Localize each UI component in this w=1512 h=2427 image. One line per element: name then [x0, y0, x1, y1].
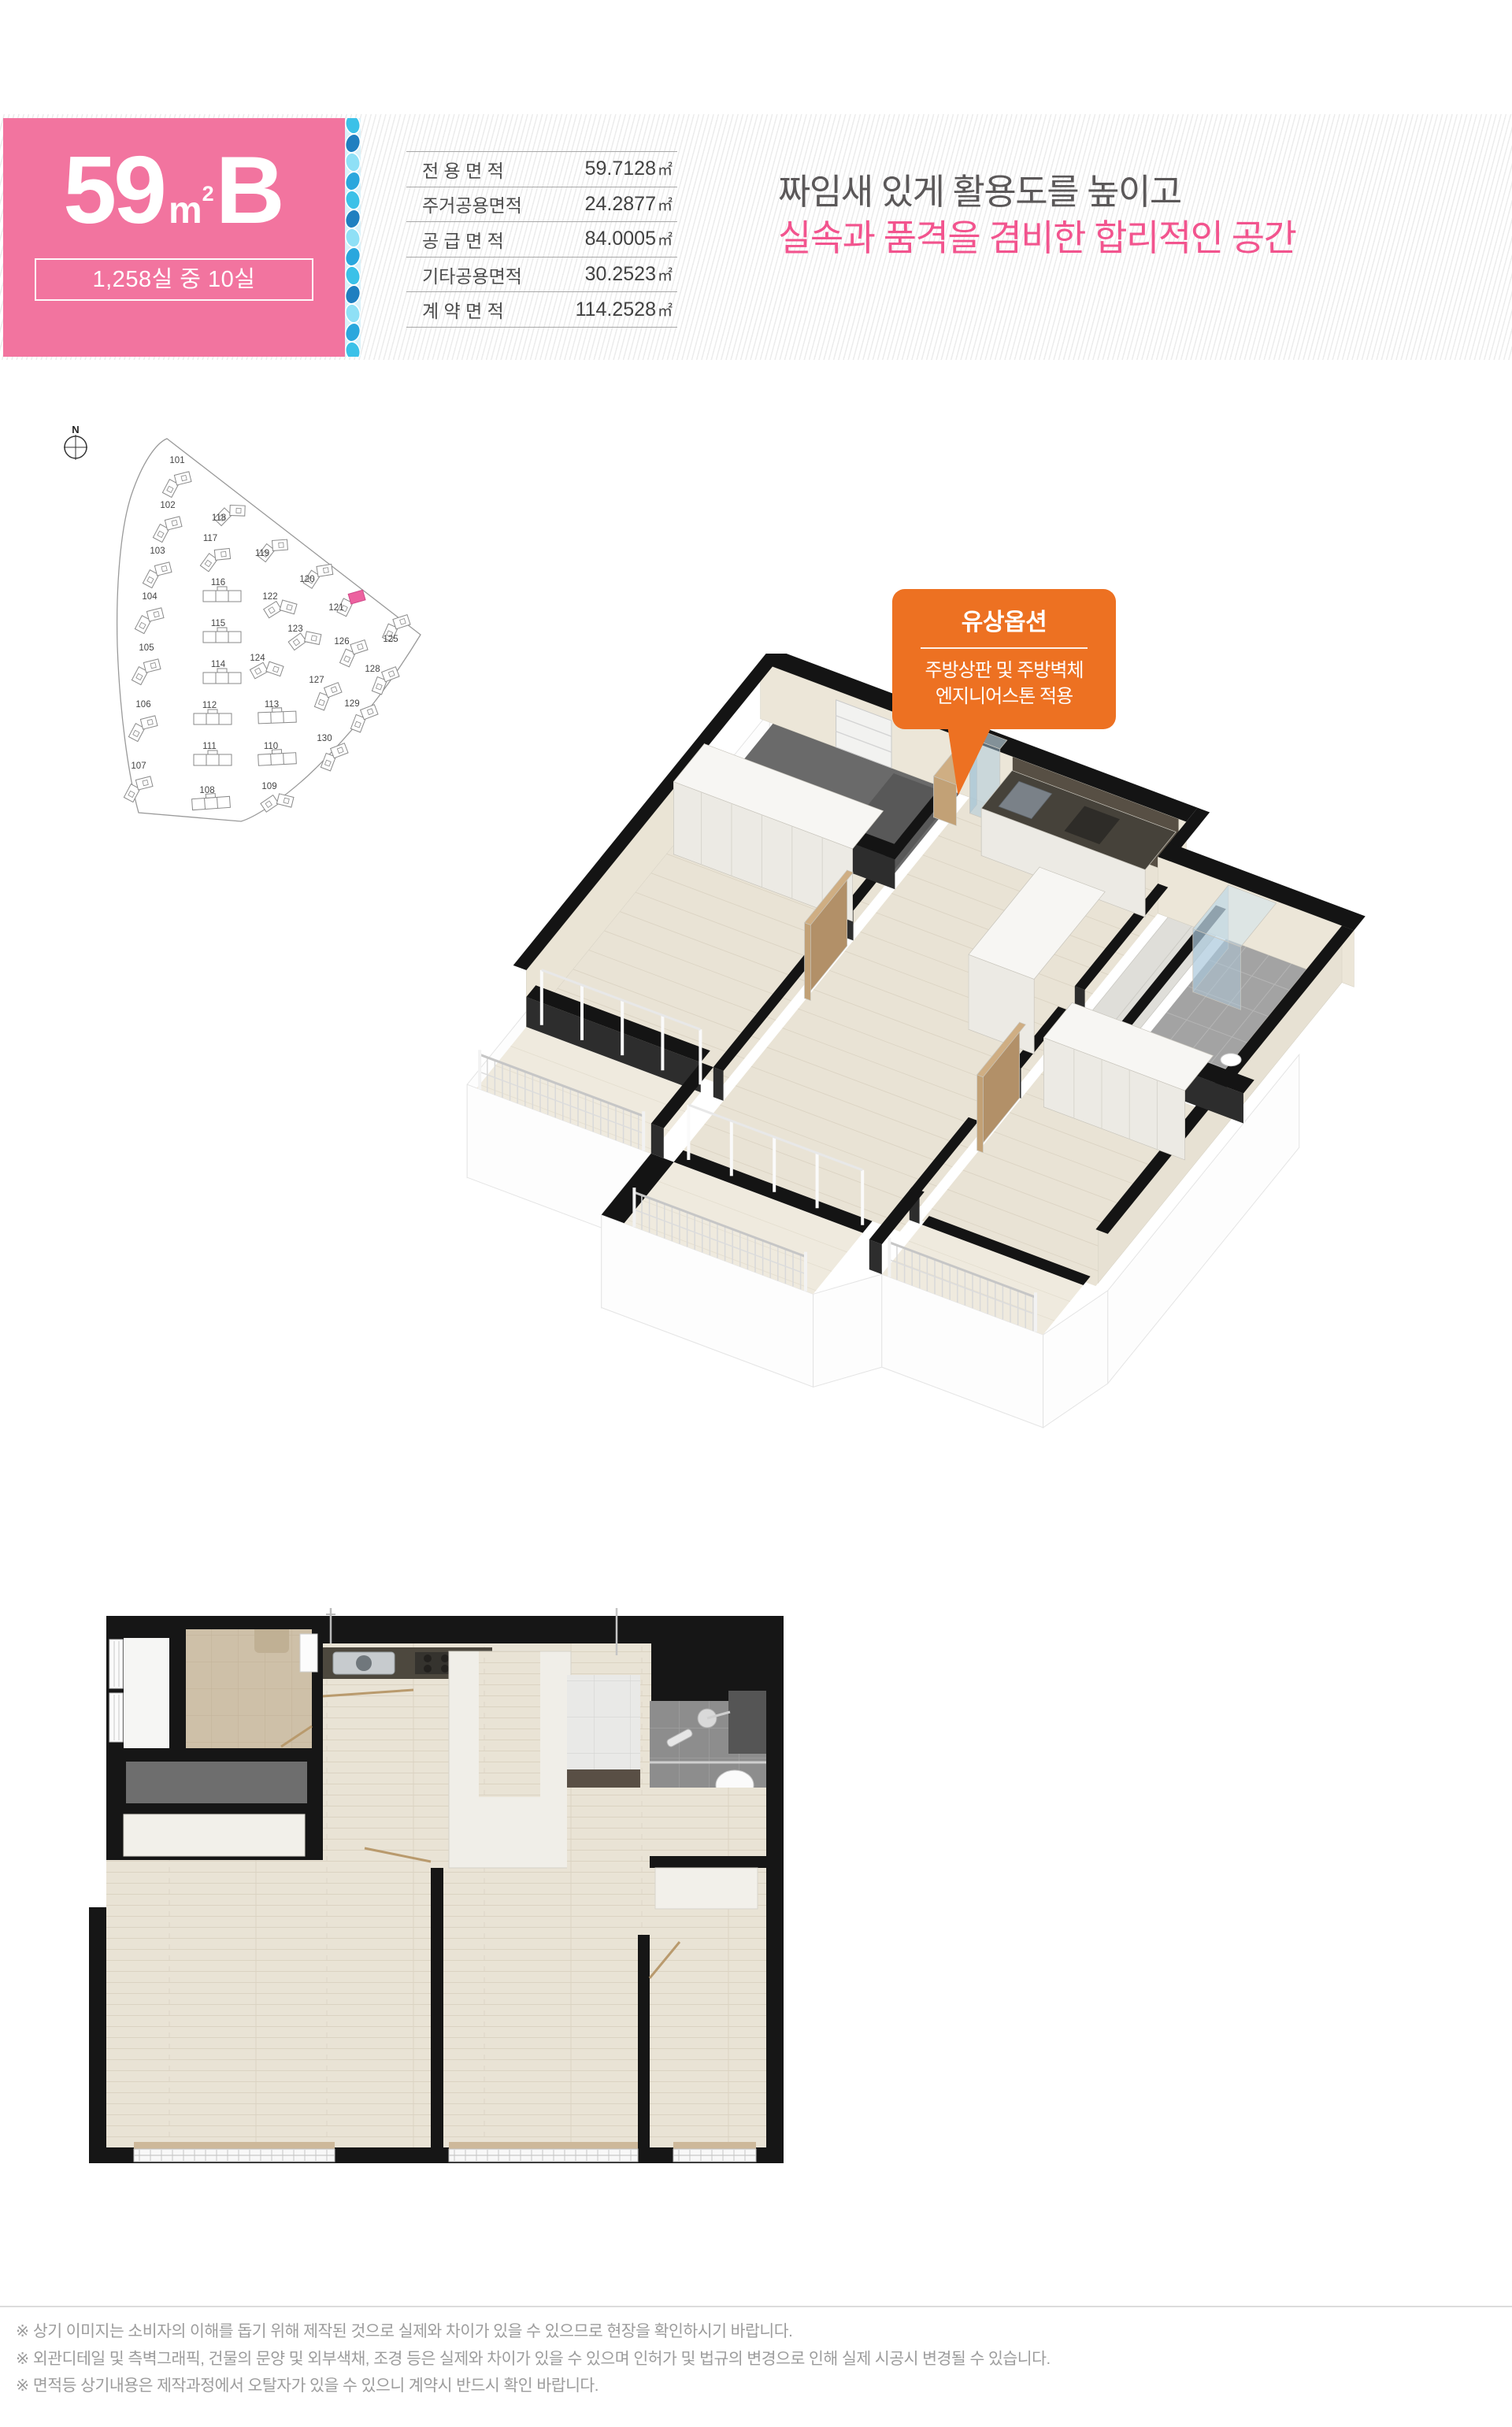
- site-building: [124, 711, 161, 744]
- unit-type-badge: 59m2B 1,258실 중 10실: [3, 118, 345, 357]
- interior-wall: [431, 1868, 443, 2147]
- wave-pattern-graphic: [345, 118, 361, 357]
- unit-area-unit: m2: [169, 182, 214, 232]
- site-building: [158, 467, 195, 500]
- site-building-label: 104: [142, 592, 157, 602]
- site-building: [149, 512, 185, 545]
- disclaimer-line: ※ 면적등 상기내용은 제작과정에서 오탈자가 있을 수 있으니 계약시 반드시…: [16, 2373, 1512, 2400]
- site-building-label: 108: [199, 786, 214, 795]
- callout-title: 유상옵션: [892, 602, 1116, 637]
- site-building-label: 118: [212, 513, 226, 523]
- svg-text:N: N: [72, 424, 79, 435]
- room-mat: [254, 1629, 289, 1653]
- site-building: [139, 558, 175, 591]
- utility-window: [109, 1693, 123, 1742]
- site-building-label: 125: [383, 635, 398, 644]
- site-building-label: 112: [202, 701, 217, 710]
- utility-room-floor: [124, 1638, 169, 1748]
- site-building: [203, 587, 241, 602]
- table-row: 계 약 면 적 114.2528㎡: [406, 292, 677, 328]
- site-building-label: 121: [328, 603, 343, 613]
- paid-option-callout: 유상옵션 주방상판 및 주방벽체 엔지니어스톤 적용: [892, 589, 1116, 729]
- site-building-label: 119: [255, 549, 269, 558]
- site-building: [128, 654, 164, 687]
- site-building-label: 117: [203, 534, 217, 543]
- peninsula-opening: [479, 1651, 540, 1797]
- site-building-label: 101: [169, 456, 184, 465]
- headline-line1: 짜임새 있게 활용도를 높이고: [778, 170, 1295, 214]
- headline: 짜임새 있게 활용도를 높이고 실속과 품격을 겸비한 합리적인 공간: [778, 170, 1295, 261]
- site-building-label: 122: [262, 592, 277, 602]
- site-building-label: 102: [160, 501, 175, 510]
- balcony-window: [449, 2142, 638, 2162]
- callout-body: 주방상판 및 주방벽체 엔지니어스톤 적용: [892, 658, 1116, 710]
- disclaimer-line: ※ 외관디테일 및 측벽그래픽, 건물의 문양 및 외부색채, 조경 등은 실제…: [16, 2346, 1512, 2373]
- disclaimer-line: ※ 상기 이미지는 소비자의 이해를 돕기 위해 제작된 것으로 실제와 차이가…: [16, 2318, 1512, 2346]
- site-building-label: 107: [131, 761, 146, 771]
- site-building: [131, 603, 167, 636]
- balcony-window: [673, 2142, 756, 2162]
- wardrobe-block: [126, 1762, 307, 1803]
- spec-label: 계 약 면 적: [422, 296, 504, 323]
- hall-floor: [567, 1788, 766, 2147]
- table-row: 전 용 면 적 59.7128㎡: [406, 152, 677, 187]
- appliance: [300, 1634, 317, 1672]
- spec-value: 30.2523㎡: [585, 263, 673, 286]
- site-building-label: 103: [150, 547, 165, 556]
- supply-count-box: 1,258실 중 10실: [35, 258, 313, 301]
- spec-value: 114.2528㎡: [576, 298, 673, 321]
- entrance-mat: [567, 1769, 640, 1788]
- site-building-label: 105: [139, 643, 154, 653]
- bedroom1-floor: [106, 1860, 431, 2147]
- site-building-label: 123: [287, 624, 302, 634]
- headline-line2: 실속과 품격을 겸비한 합리적인 공간: [778, 214, 1295, 261]
- wave-pattern-strip: [345, 118, 361, 357]
- spec-label: 주거공용면적: [422, 191, 522, 217]
- spec-label: 전 용 면 적: [422, 156, 504, 183]
- unit-area-number: 59: [63, 142, 164, 238]
- flyer-page: 59m2B 1,258실 중 10실 전 용 면 적 59.7128㎡ 주거공용…: [0, 0, 1512, 2427]
- disclaimer-footer: ※ 상기 이미지는 소비자의 이해를 돕기 위해 제작된 것으로 실제와 차이가…: [0, 2306, 1512, 2427]
- callout-divider: [921, 647, 1088, 649]
- spec-label: 공 급 면 적: [422, 226, 504, 253]
- spec-value: 24.2877㎡: [585, 193, 673, 216]
- site-building-label: 106: [135, 700, 150, 710]
- table-row: 주거공용면적 24.2877㎡: [406, 187, 677, 223]
- site-building-label: 120: [299, 575, 314, 584]
- site-building-label: 116: [211, 578, 225, 587]
- bath-niche: [728, 1691, 766, 1754]
- site-building: [120, 772, 156, 805]
- table-row: 공 급 면 적 84.0005㎡: [406, 222, 677, 258]
- unit-type-title: 59m2B: [3, 142, 345, 238]
- site-building: [197, 543, 234, 574]
- unit-type-letter: B: [216, 142, 285, 238]
- sink-drain: [356, 1655, 372, 1671]
- site-building: [203, 628, 241, 643]
- site-building-label: 115: [211, 619, 225, 628]
- interior-wall: [650, 1856, 766, 1868]
- area-spec-table: 전 용 면 적 59.7128㎡ 주거공용면적 24.2877㎡ 공 급 면 적…: [406, 151, 677, 328]
- closet-band: [124, 1814, 305, 1856]
- spec-value: 84.0005㎡: [585, 228, 673, 250]
- floorplan-3d-render: [220, 654, 1417, 1591]
- compass-icon: N: [64, 424, 87, 460]
- floorplan-2d: [51, 1608, 799, 2200]
- multipurpose-room-floor: [186, 1629, 312, 1748]
- spec-value: 59.7128㎡: [585, 157, 673, 180]
- interior-wall: [638, 1935, 650, 2147]
- site-building-label: 126: [334, 637, 349, 647]
- utility-window: [109, 1640, 123, 1688]
- site-building-label: 111: [202, 742, 216, 751]
- entrance-floor: [567, 1675, 640, 1769]
- bedroom2-closet: [655, 1868, 758, 1909]
- table-row: 기타공용면적 30.2523㎡: [406, 258, 677, 293]
- spec-label: 기타공용면적: [422, 261, 522, 288]
